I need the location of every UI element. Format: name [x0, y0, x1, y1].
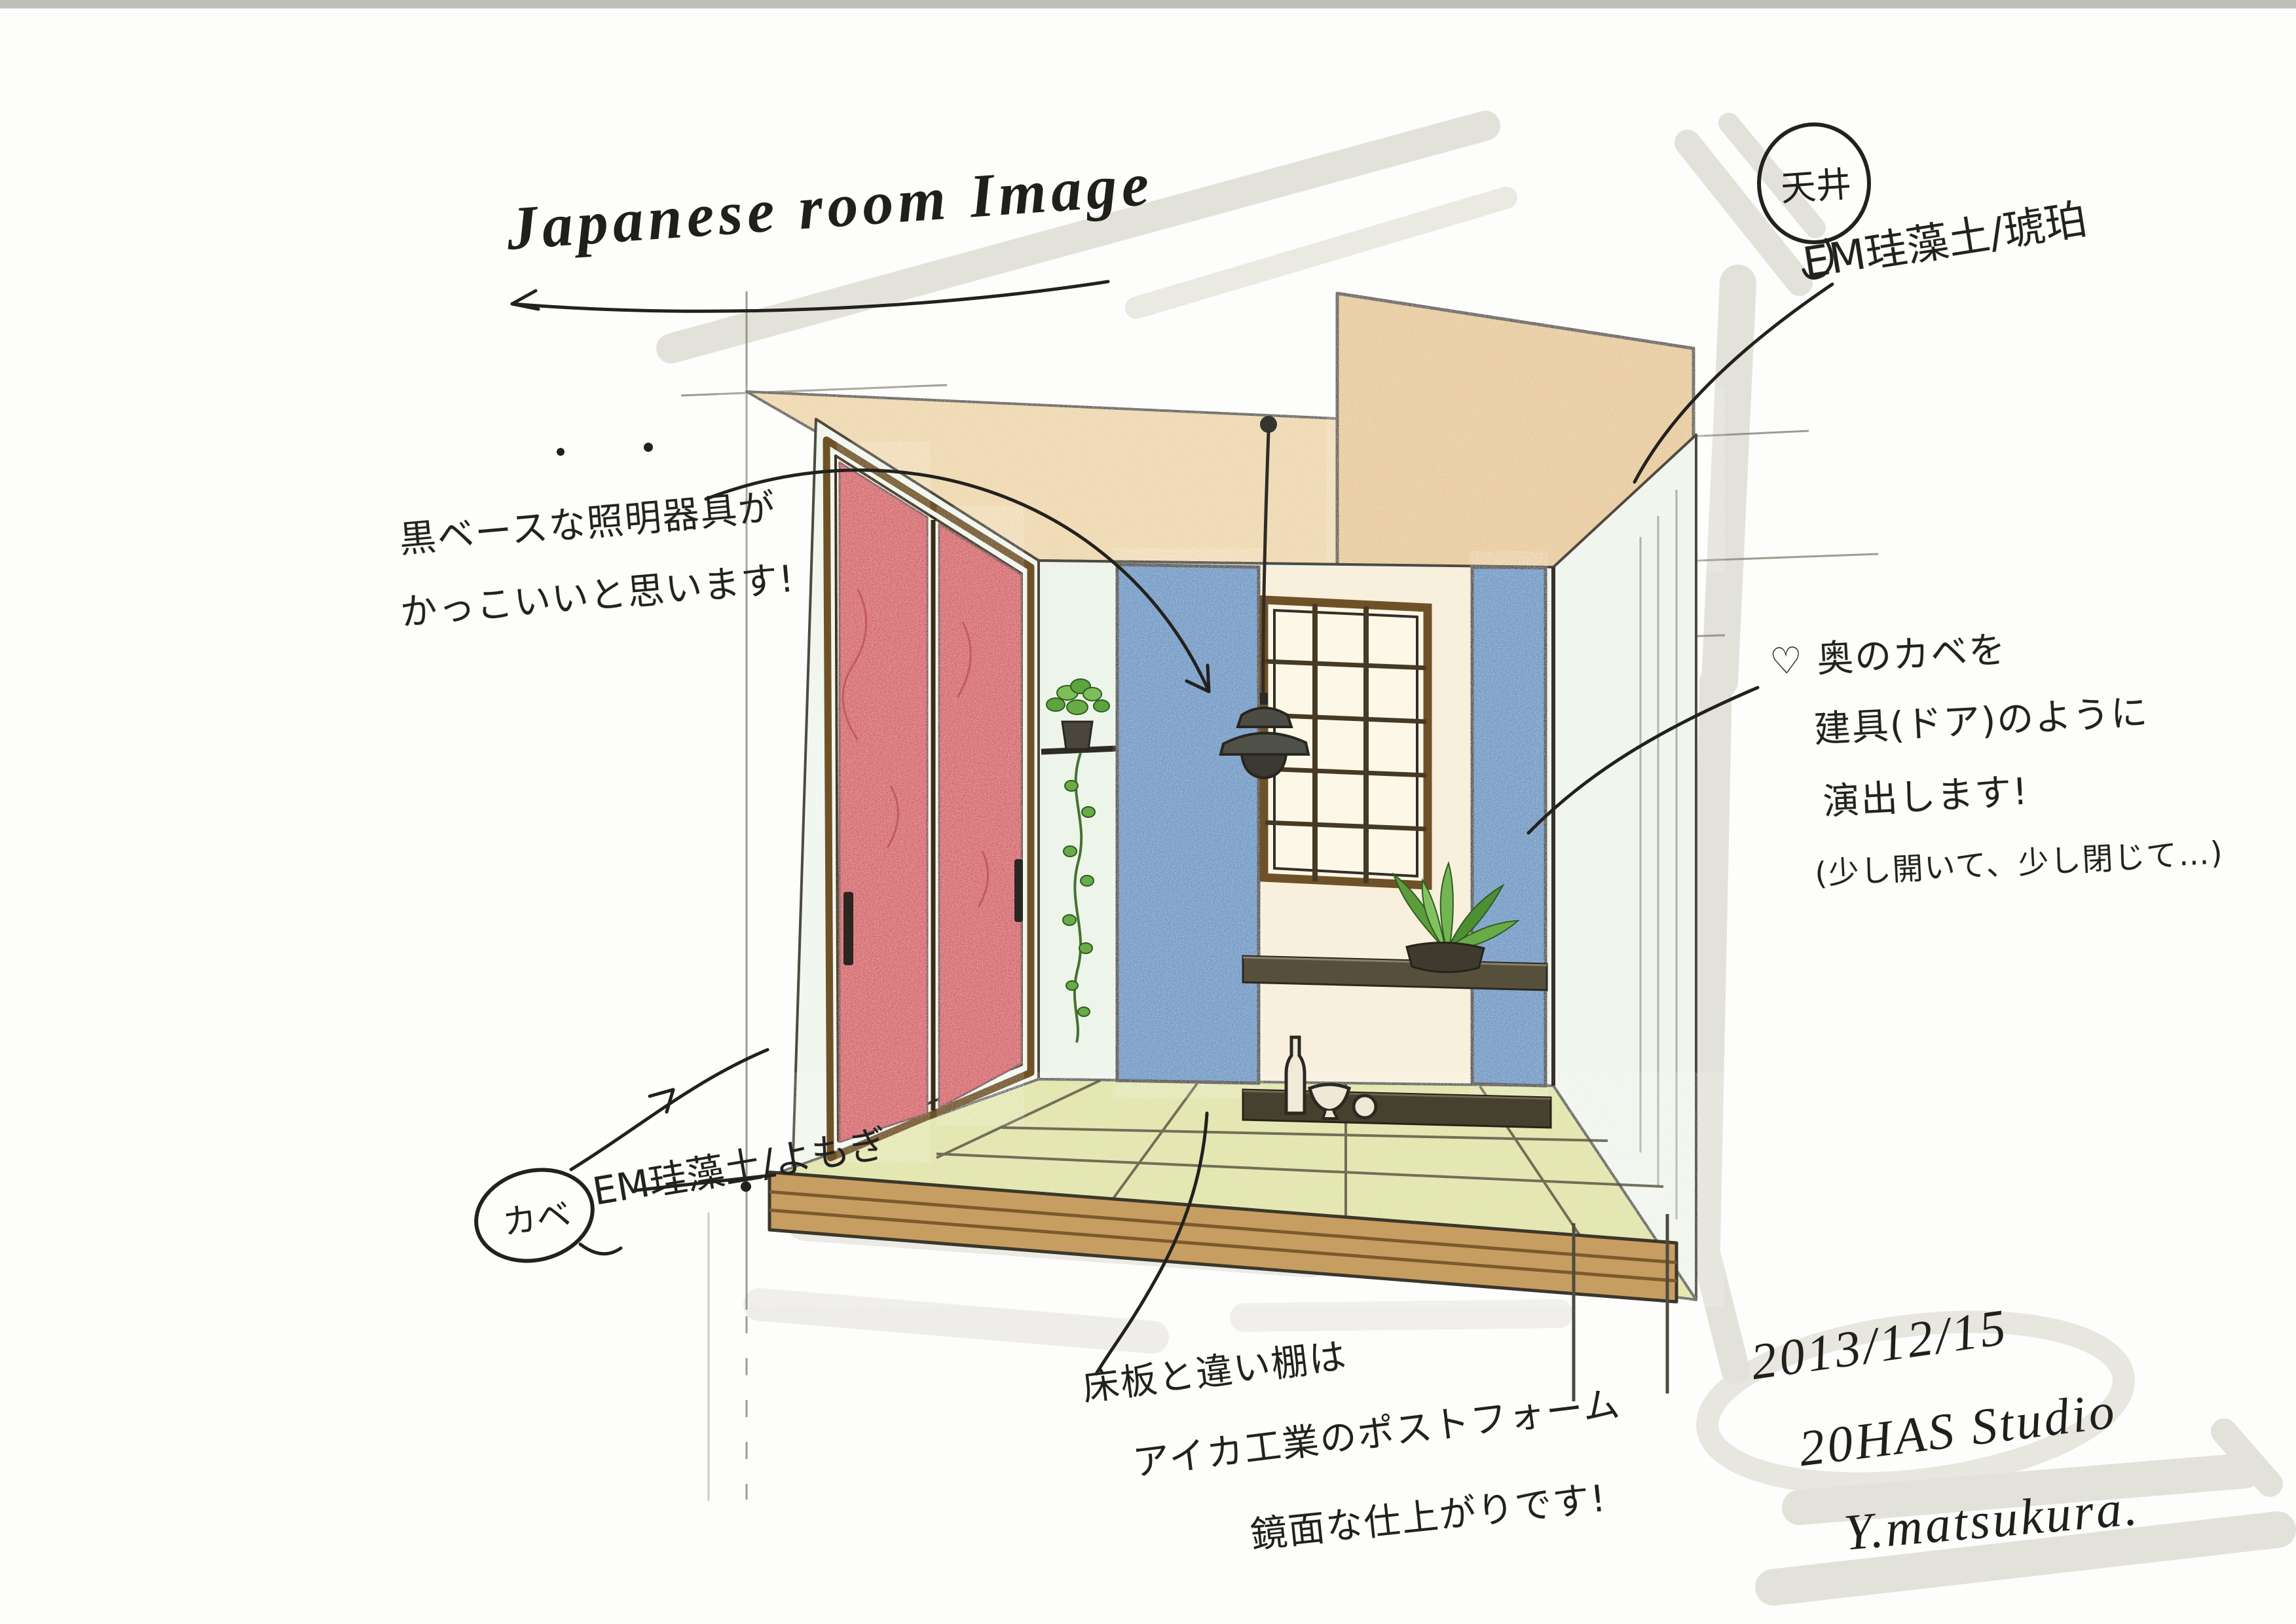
backwall-note: ♡ 奥のカベを 建具(ドア)のように 演出します! (少し開いて、少し閉じて…) [1768, 610, 2225, 896]
blue-panel-left [1117, 564, 1259, 1083]
backwall-note-line3: 演出します! [1821, 752, 2221, 826]
door-panel-left [840, 462, 927, 1142]
counter-plant-bowl [1407, 942, 1484, 972]
wall-label: カベ [499, 1187, 573, 1245]
pedestal-bowl-foot [1323, 1111, 1337, 1118]
backwall-note-line2: 建具(ドア)のように [1813, 679, 2217, 753]
wall-bubble-tail [580, 1244, 621, 1254]
door-handle-right [1014, 859, 1023, 922]
lamp-canopy [1260, 416, 1277, 433]
door-handle-left [843, 892, 853, 965]
scan-top-edge [0, 0, 2296, 9]
lamp-finial [1260, 693, 1268, 705]
small-cup [1354, 1096, 1376, 1118]
ceiling-label: 天井 [1779, 155, 1853, 211]
door-panel-right [939, 524, 1022, 1108]
heart-icon: ♡ [1769, 639, 1805, 684]
sketch-page: Japanese room Image 天井 EM珪藻土/琥珀 黒ベースな照明器… [0, 0, 2296, 1624]
shelf-plant-pot [1062, 722, 1092, 749]
